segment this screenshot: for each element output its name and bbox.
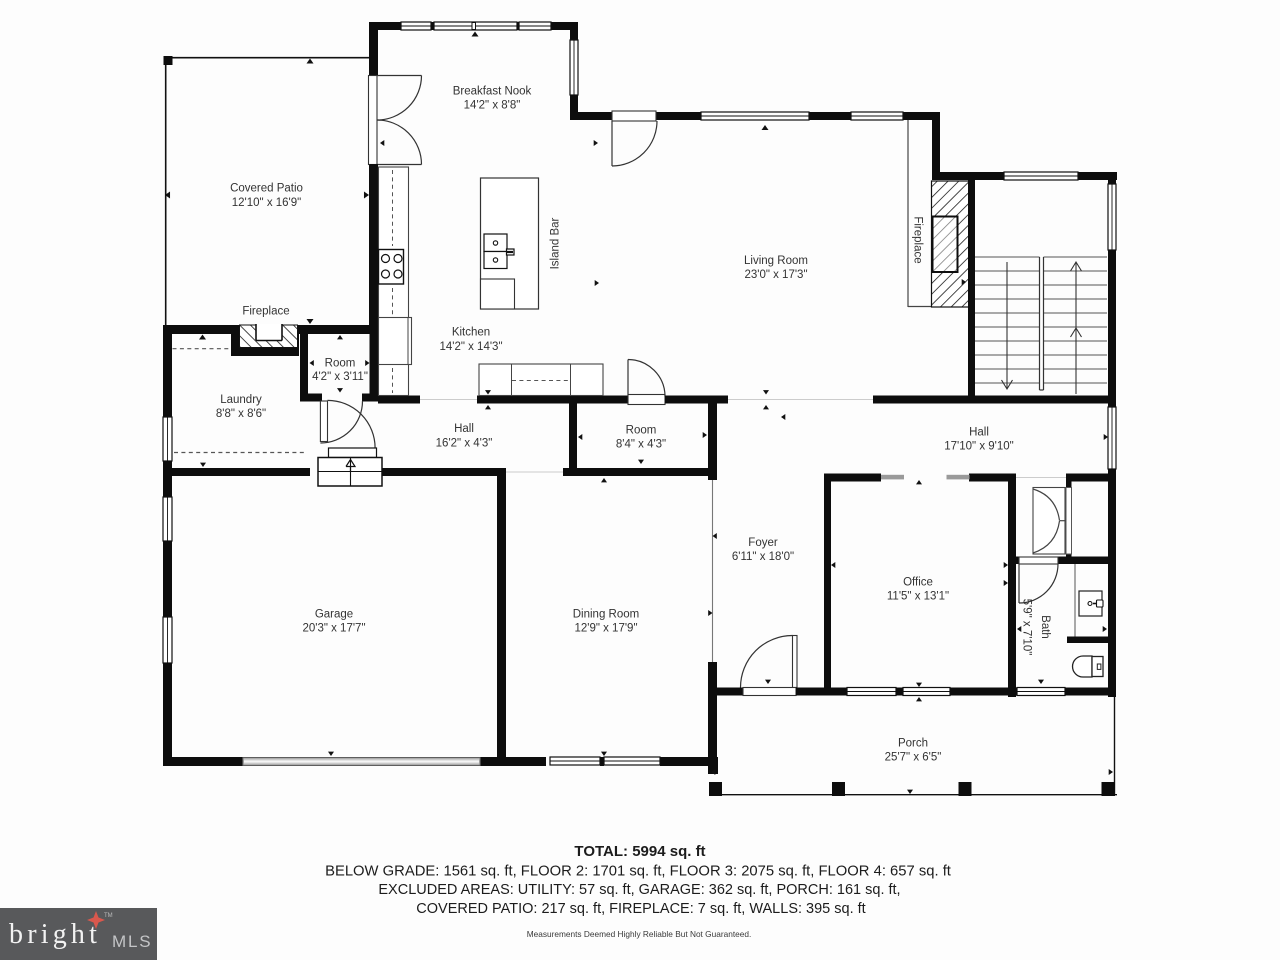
svg-text:TOTAL: 5994 sq. ft: TOTAL: 5994 sq. ft bbox=[574, 843, 705, 860]
svg-text:25'7" x 6'5": 25'7" x 6'5" bbox=[885, 752, 942, 764]
svg-text:EXCLUDED AREAS: UTILITY: 57 sq: EXCLUDED AREAS: UTILITY: 57 sq. ft, GARA… bbox=[378, 882, 900, 898]
svg-text:23'0" x 17'3": 23'0" x 17'3" bbox=[744, 269, 807, 281]
svg-text:16'2" x 4'3": 16'2" x 4'3" bbox=[436, 437, 493, 449]
svg-text:Living Room: Living Room bbox=[744, 255, 808, 267]
svg-text:Bath: Bath bbox=[1039, 615, 1051, 639]
svg-text:Foyer: Foyer bbox=[748, 537, 778, 549]
svg-text:Covered Patio: Covered Patio bbox=[230, 183, 303, 195]
svg-text:BELOW GRADE: 1561 sq. ft, FLOO: BELOW GRADE: 1561 sq. ft, FLOOR 2: 1701 … bbox=[325, 864, 951, 880]
svg-text:5'9" x 7'10": 5'9" x 7'10" bbox=[1021, 599, 1033, 656]
svg-text:Island Bar: Island Bar bbox=[550, 217, 562, 269]
svg-text:17'10" x 9'10": 17'10" x 9'10" bbox=[944, 441, 1013, 453]
svg-text:Breakfast Nook: Breakfast Nook bbox=[453, 85, 532, 97]
svg-text:Fireplace: Fireplace bbox=[242, 306, 289, 318]
svg-text:Laundry: Laundry bbox=[220, 394, 262, 406]
svg-text:Hall: Hall bbox=[969, 427, 989, 439]
svg-text:MLS: MLS bbox=[112, 932, 152, 951]
svg-text:Porch: Porch bbox=[898, 738, 928, 750]
svg-text:14'2" x 8'8": 14'2" x 8'8" bbox=[464, 100, 521, 112]
svg-text:Kitchen: Kitchen bbox=[452, 327, 490, 339]
svg-text:4'2" x 3'11": 4'2" x 3'11" bbox=[312, 371, 368, 383]
svg-text:8'4" x 4'3": 8'4" x 4'3" bbox=[616, 439, 666, 451]
svg-text:COVERED PATIO: 217 sq. ft, FIR: COVERED PATIO: 217 sq. ft, FIREPLACE: 7 … bbox=[416, 901, 865, 917]
svg-text:8'8" x 8'6": 8'8" x 8'6" bbox=[216, 408, 266, 420]
svg-text:11'5" x 13'1": 11'5" x 13'1" bbox=[887, 591, 949, 603]
svg-text:6'11" x 18'0": 6'11" x 18'0" bbox=[732, 551, 794, 563]
svg-text:12'9" x 17'9": 12'9" x 17'9" bbox=[574, 623, 637, 635]
svg-text:Hall: Hall bbox=[454, 423, 474, 435]
svg-text:14'2" x 14'3": 14'2" x 14'3" bbox=[439, 341, 502, 353]
svg-text:20'3" x 17'7": 20'3" x 17'7" bbox=[302, 623, 365, 635]
svg-text:Fireplace: Fireplace bbox=[912, 216, 924, 263]
svg-text:12'10" x 16'9": 12'10" x 16'9" bbox=[232, 197, 301, 209]
svg-text:bright: bright bbox=[9, 919, 101, 950]
svg-text:Garage: Garage bbox=[315, 609, 353, 621]
svg-text:Measurements Deemed Highly Rel: Measurements Deemed Highly Reliable But … bbox=[527, 929, 752, 939]
svg-text:Room: Room bbox=[325, 357, 356, 369]
svg-text:TM: TM bbox=[104, 913, 113, 919]
svg-text:Room: Room bbox=[626, 425, 657, 437]
svg-text:Office: Office bbox=[903, 577, 933, 589]
svg-text:Dining Room: Dining Room bbox=[573, 609, 639, 621]
